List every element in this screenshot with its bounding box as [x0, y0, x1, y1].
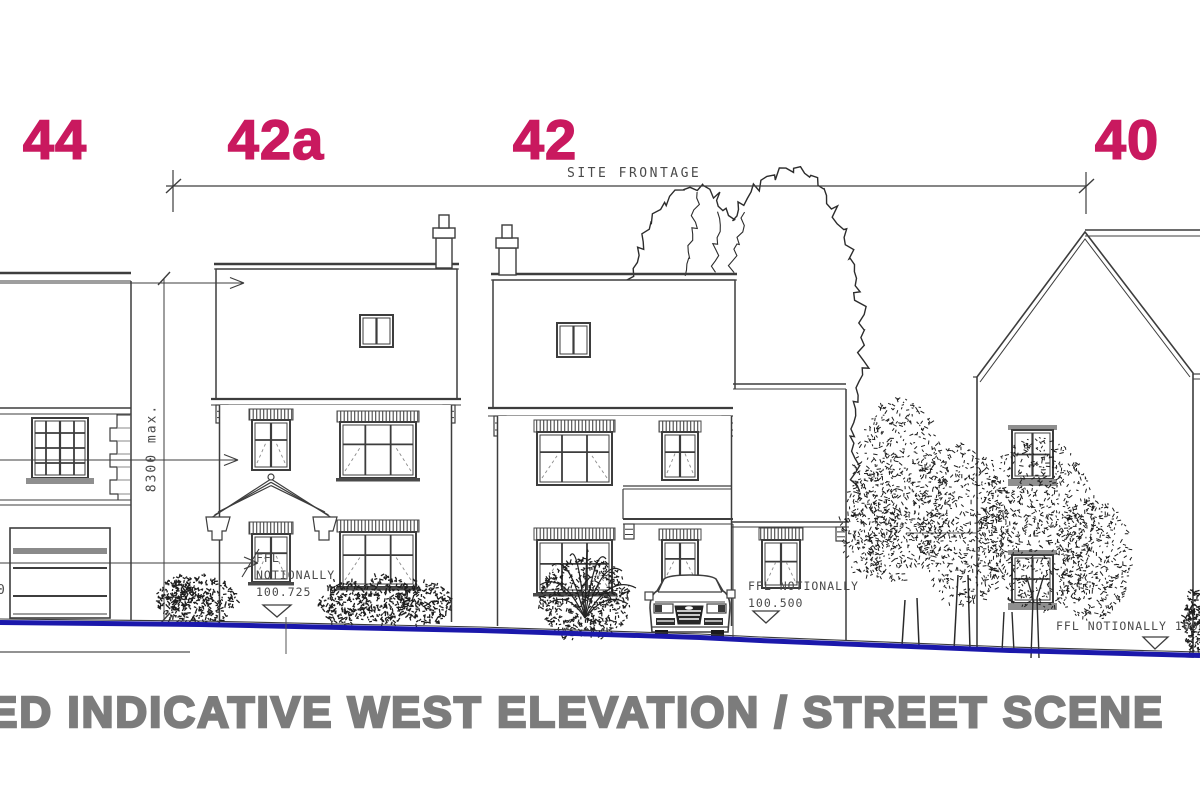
sheet-title: ED INDICATIVE WEST ELEVATION / STREET SC… [0, 691, 1164, 735]
ffl-annotation-42a: FFL NOTIONALLY 100.725 [256, 550, 335, 601]
house-number-42a: 42a [228, 112, 324, 168]
ffl-40-line1: FFL NOTIONALLY 100.000 [1056, 618, 1200, 635]
ffl-42a-value: 100.725 [256, 584, 335, 601]
ffl-42-value: 100.500 [748, 595, 859, 612]
site-frontage-label: SITE FRONTAGE [567, 166, 701, 181]
house-number-44: 44 [23, 112, 87, 168]
ffl-42a-line1: FFL [256, 550, 335, 567]
max-height-label: 8300 max. [145, 404, 160, 492]
house-number-42: 42 [513, 112, 577, 168]
elevation-drawing [0, 0, 1200, 800]
street-scene-elevation-sheet: 44 42a 42 40 SITE FRONTAGE 8300 max. FFL… [0, 0, 1200, 800]
house-number-40: 40 [1095, 112, 1159, 168]
ffl-annotation-40: FFL NOTIONALLY 100.000 [1056, 618, 1200, 635]
ffl-annotation-42: FFL NOTIONALLY 100.500 [748, 578, 859, 612]
ffl-42-line1: FFL NOTIONALLY [748, 578, 859, 595]
edge-text-fragment: 0 [0, 583, 5, 598]
ffl-42a-line2: NOTIONALLY [256, 567, 335, 584]
